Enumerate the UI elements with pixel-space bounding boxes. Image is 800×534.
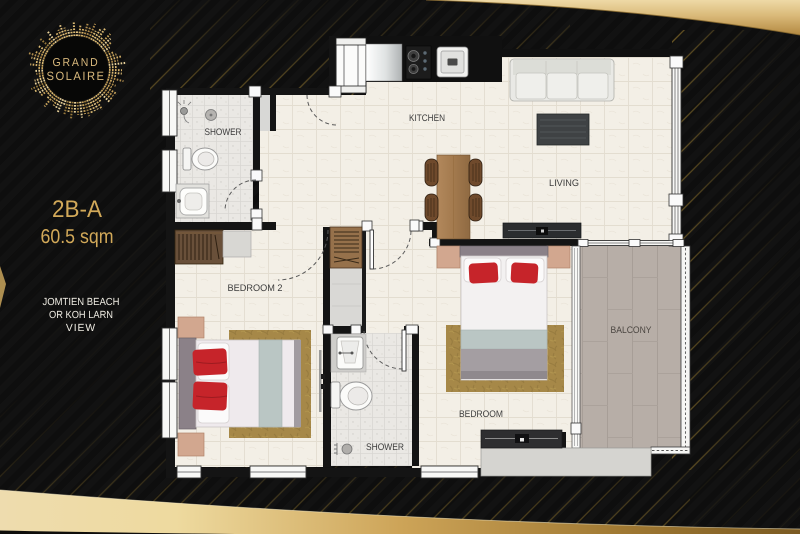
svg-text:BALCONY: BALCONY [611,325,653,336]
svg-text:KITCHEN: KITCHEN [409,113,445,124]
svg-text:SOLAIRE: SOLAIRE [47,69,106,83]
svg-text:60.5 sqm: 60.5 sqm [41,226,114,248]
svg-text:SHOWER: SHOWER [366,442,404,453]
svg-text:VIEW: VIEW [66,323,96,334]
svg-text:JOMTIEN BEACH: JOMTIEN BEACH [43,297,120,308]
svg-text:LIVING: LIVING [549,178,579,189]
svg-text:OR KOH LARN: OR KOH LARN [49,310,113,321]
svg-text:SHOWER: SHOWER [205,127,242,138]
svg-text:BEDROOM 2: BEDROOM 2 [228,283,283,294]
svg-text:GRAND: GRAND [53,57,100,69]
svg-text:2B-A: 2B-A [52,196,102,223]
svg-text:BEDROOM: BEDROOM [459,409,503,420]
